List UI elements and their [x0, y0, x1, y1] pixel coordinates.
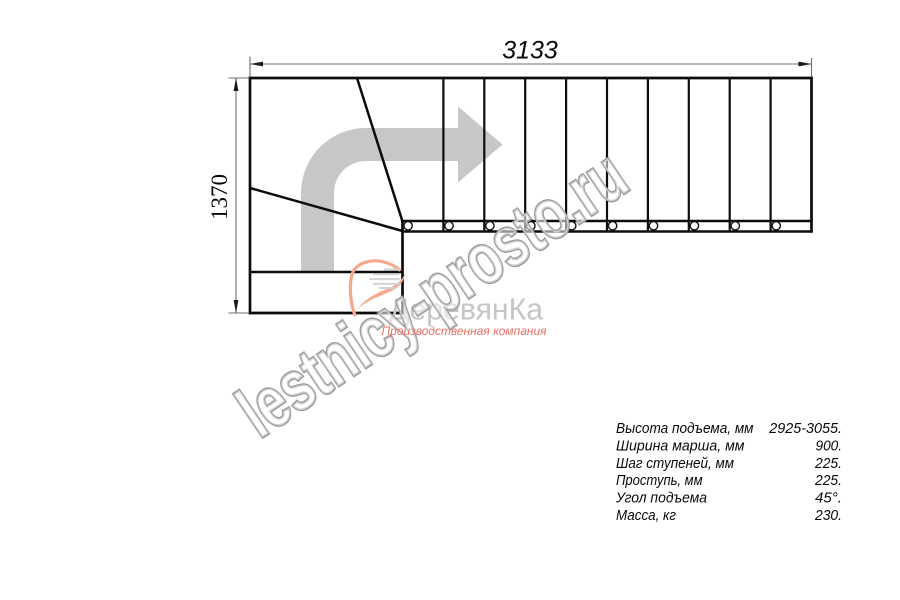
svg-text:230.: 230. — [814, 507, 842, 524]
svg-text:Проступь, мм: Проступь, мм — [616, 472, 703, 489]
svg-text:900.: 900. — [816, 437, 843, 454]
svg-text:225.: 225. — [814, 455, 842, 472]
svg-text:Шаг ступеней, мм: Шаг ступеней, мм — [616, 455, 735, 472]
svg-text:225.: 225. — [814, 472, 842, 489]
svg-text:Масса, кг: Масса, кг — [616, 507, 676, 524]
svg-text:3133: 3133 — [502, 37, 558, 65]
svg-text:1370: 1370 — [207, 174, 232, 220]
svg-text:Высота подъема, мм: Высота подъема, мм — [616, 420, 754, 437]
svg-text:Угол подъема: Угол подъема — [615, 490, 707, 507]
svg-text:Ширина марша, мм: Ширина марша, мм — [616, 437, 745, 454]
svg-text:Производственная компания: Производственная компания — [382, 324, 548, 338]
svg-text:45°.: 45°. — [815, 490, 842, 507]
svg-text:2925-3055.: 2925-3055. — [768, 420, 842, 437]
